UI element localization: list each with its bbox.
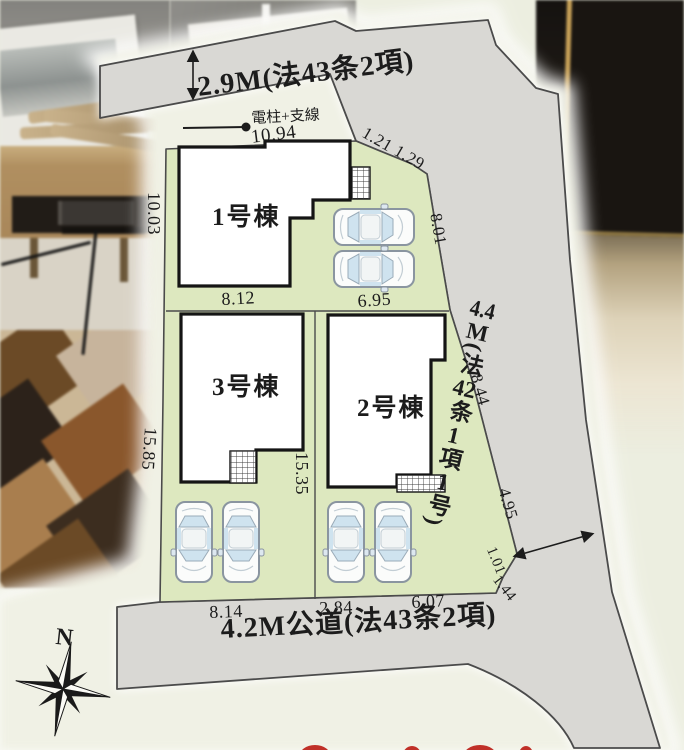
dim-top: 10.94	[250, 122, 297, 146]
building-3-porch-hatch	[230, 451, 256, 483]
building-1-porch-hatch	[352, 167, 370, 199]
parked-car	[370, 502, 416, 582]
building-1-label: 1号棟	[212, 205, 281, 230]
parked-car	[334, 246, 414, 292]
parked-car	[171, 502, 217, 582]
dim-bottom-mid: 2.84	[319, 598, 353, 617]
dim-left-upper: 10.03	[145, 192, 163, 235]
building-3-label: 3号棟	[212, 375, 281, 400]
dim-left-lower: 15.85	[139, 427, 160, 471]
dim-b1-bottom: 8.12	[221, 288, 255, 308]
parked-car	[334, 204, 414, 250]
building-2-label: 2号棟	[357, 396, 426, 421]
site-plan-page: 2.9M(法43条2項) 電柱+支線 4.4M(法42条1項1号) 4.2M公道…	[0, 0, 684, 750]
parked-car	[323, 502, 369, 582]
compass-north-label: N	[54, 625, 74, 651]
dim-b1-right: 6.95	[357, 290, 392, 310]
parked-car	[218, 502, 264, 582]
dim-bottom-left: 8.14	[209, 602, 243, 621]
dim-bottom-right: 6.07	[411, 591, 445, 611]
dim-center: 15.35	[293, 452, 311, 495]
